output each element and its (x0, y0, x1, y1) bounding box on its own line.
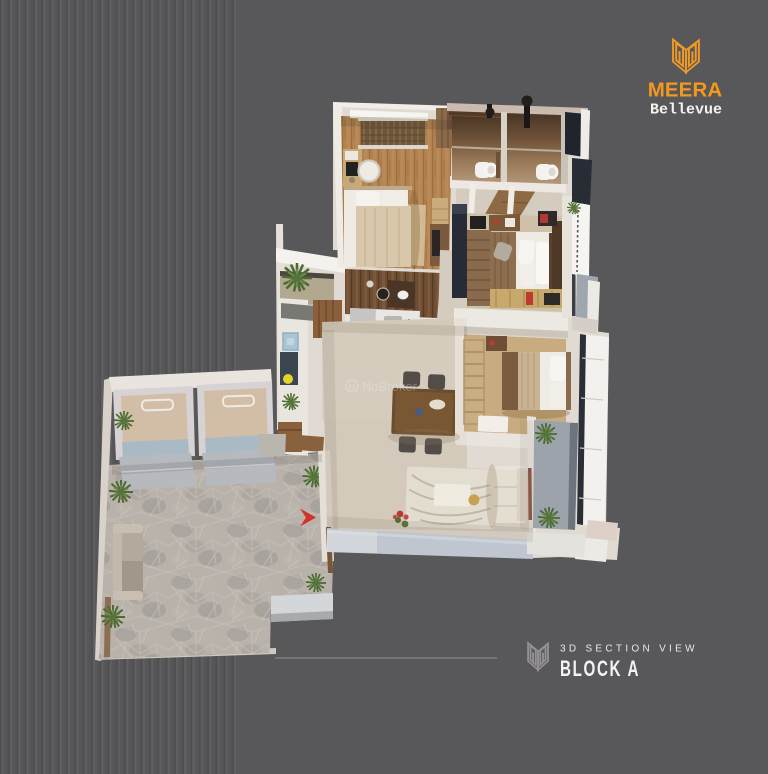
svg-text:N: N (349, 382, 355, 392)
svg-text:BLOCK A: BLOCK A (560, 656, 640, 680)
svg-text:NoBroker: NoBroker (362, 379, 418, 394)
svg-text:3D SECTION VIEW: 3D SECTION VIEW (560, 644, 698, 655)
svg-text:Bellevue: Bellevue (650, 102, 722, 119)
svg-text:MEERA: MEERA (648, 79, 723, 102)
